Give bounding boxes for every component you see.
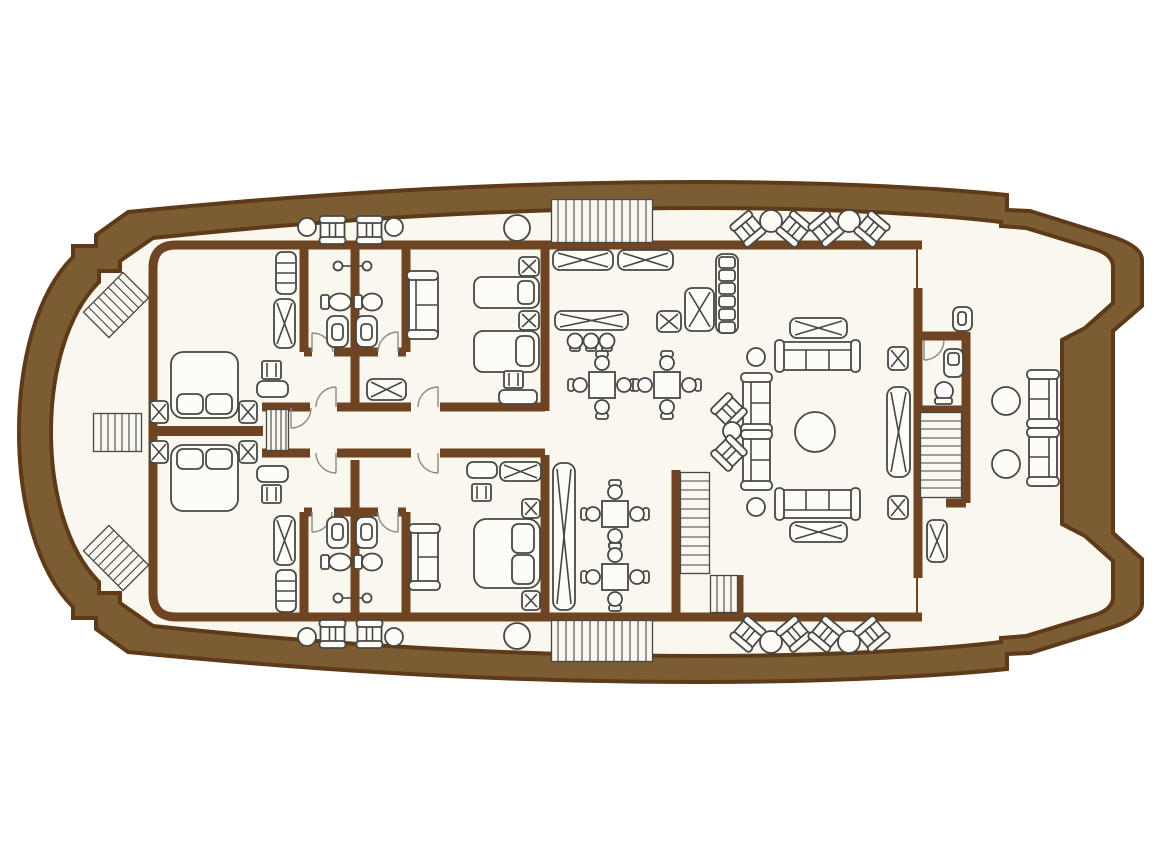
corridor-companionway-steps[interactable] xyxy=(267,410,289,451)
wardrobe xyxy=(274,516,295,565)
nightstand xyxy=(150,441,168,463)
vanity-table xyxy=(262,361,281,379)
side-table xyxy=(385,218,403,236)
tall-cabinet xyxy=(887,387,910,477)
sideboard xyxy=(618,250,673,270)
bow-deck-steps[interactable] xyxy=(94,414,142,452)
single-bed xyxy=(474,277,539,308)
nightstand xyxy=(239,441,257,463)
double-bed xyxy=(171,352,238,418)
buffet-counter xyxy=(555,311,628,330)
round-table xyxy=(504,623,530,649)
deck-plan-page: Motor yacht main deck floor plan xyxy=(0,0,1152,864)
vanity-table xyxy=(504,371,523,388)
double-bed xyxy=(474,519,540,588)
deck-chair xyxy=(320,216,346,244)
side-table xyxy=(385,628,403,646)
nightstand xyxy=(522,591,540,610)
vanity-table xyxy=(472,484,491,501)
sofa xyxy=(775,340,860,372)
washbasin xyxy=(354,294,382,311)
nightstand xyxy=(239,401,257,423)
stool xyxy=(257,381,288,397)
side-table xyxy=(298,218,316,236)
nightstand xyxy=(519,257,539,276)
deck-plan-drawing xyxy=(0,0,1152,864)
side-table xyxy=(298,628,316,646)
stool xyxy=(499,390,537,404)
washbasin xyxy=(321,554,351,571)
toilet xyxy=(327,316,348,347)
toilet xyxy=(944,349,963,377)
sideboard xyxy=(367,379,406,400)
bar-shelf-unit xyxy=(716,254,738,333)
sofa xyxy=(1027,370,1059,428)
deck-chair xyxy=(357,216,383,244)
coffee-table xyxy=(790,522,847,542)
nightstand xyxy=(888,347,908,370)
side-table xyxy=(747,498,765,516)
coffee-table xyxy=(790,318,847,338)
bar-stool xyxy=(584,334,599,352)
toilet xyxy=(356,517,377,548)
sideboard xyxy=(553,250,613,270)
locker xyxy=(927,520,947,562)
bench xyxy=(276,252,296,294)
wide-deck-stairs-top[interactable] xyxy=(552,200,653,243)
drink-station xyxy=(953,307,972,331)
side-table xyxy=(747,348,765,366)
sofa xyxy=(407,271,438,339)
round-table xyxy=(992,387,1020,415)
tall-locker xyxy=(553,463,575,610)
side-table xyxy=(657,311,681,332)
wide-deck-stairs-bottom[interactable] xyxy=(552,621,653,662)
vanity-table xyxy=(262,485,281,503)
wardrobe xyxy=(274,299,295,348)
round-table xyxy=(992,450,1020,478)
cabinet xyxy=(685,288,714,331)
sofa xyxy=(409,524,440,590)
sofa xyxy=(741,373,772,433)
sofa xyxy=(741,430,772,490)
sideboard xyxy=(500,462,541,481)
sofa xyxy=(775,488,860,520)
washbasin xyxy=(935,382,953,404)
stool xyxy=(467,462,497,478)
single-bed xyxy=(474,331,539,372)
deck-chair xyxy=(320,620,346,648)
nightstand xyxy=(150,401,168,423)
nightstand xyxy=(522,499,540,518)
aft-staircase[interactable] xyxy=(921,413,962,498)
dining-table xyxy=(602,501,628,527)
stool xyxy=(257,466,288,482)
toilet xyxy=(327,517,348,548)
toilet xyxy=(356,316,377,347)
bench xyxy=(276,570,296,612)
dining-table xyxy=(602,564,628,590)
bar-stool xyxy=(568,334,583,352)
dining-table xyxy=(589,372,615,398)
washbasin xyxy=(321,294,351,311)
deck-chair xyxy=(357,620,383,648)
nightstand xyxy=(519,311,539,330)
bar-stool xyxy=(600,334,615,352)
washbasin xyxy=(354,554,382,571)
round-coffee-table xyxy=(795,412,835,452)
nightstand xyxy=(888,496,908,519)
double-bed xyxy=(171,445,238,511)
dining-table xyxy=(654,372,680,398)
sofa xyxy=(1027,428,1059,486)
round-table xyxy=(504,215,530,241)
